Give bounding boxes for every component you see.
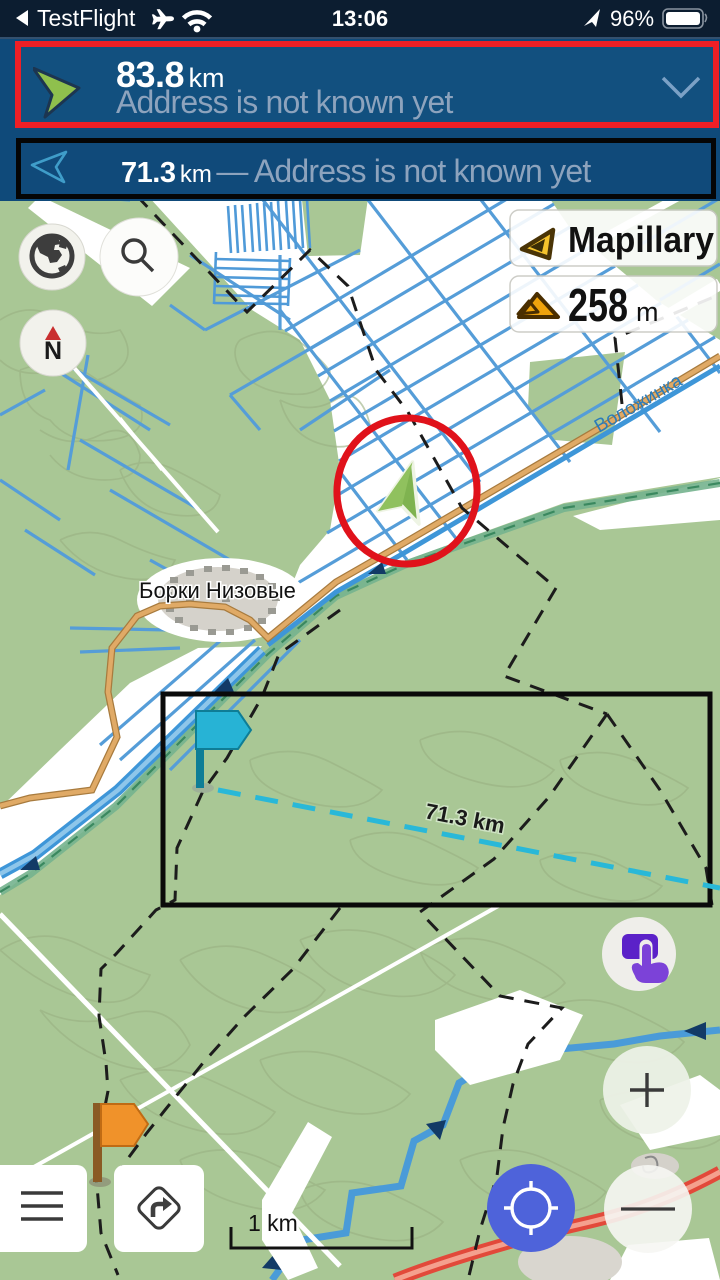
svg-text:N: N: [44, 337, 62, 365]
svg-text:m: m: [636, 297, 659, 327]
svg-text:1 km: 1 km: [248, 1210, 298, 1236]
svg-text:TestFlight: TestFlight: [37, 5, 136, 31]
svg-text:258: 258: [568, 279, 628, 331]
svg-text:Борки Низовые: Борки Низовые: [139, 578, 296, 603]
svg-text:96%: 96%: [610, 6, 654, 31]
svg-text:13:06: 13:06: [332, 6, 388, 31]
svg-text:Mapillary: Mapillary: [568, 219, 714, 260]
